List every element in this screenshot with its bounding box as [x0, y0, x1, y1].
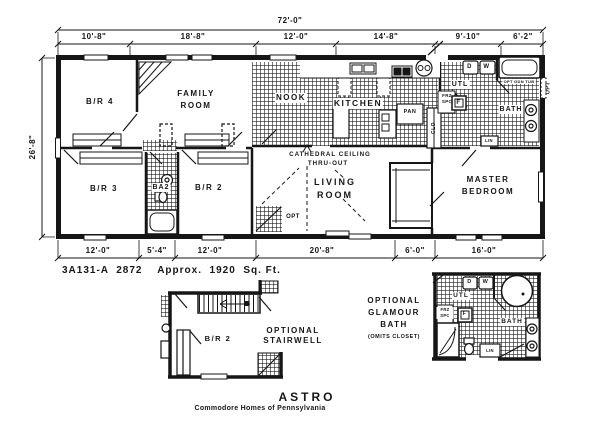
- label-garden-tub: OPT GDN TUB: [503, 79, 536, 84]
- label-washer: W: [483, 64, 490, 72]
- room-label-living: LIVING ROOM: [306, 176, 364, 202]
- label-opt-right: OPT: [545, 82, 552, 95]
- room-label-family: FAMILY ROOM: [168, 88, 224, 111]
- dim-top-2: 12'-0": [284, 32, 309, 42]
- dim-bottom-4: 6'-0": [405, 246, 425, 256]
- plan-subtitle: Commodore Homes of Pennsylvania: [194, 404, 325, 413]
- room-label-br3: B/R 3: [90, 184, 118, 194]
- detail2-label-furnace: F: [463, 311, 468, 318]
- detail1-title-1: OPTIONAL: [266, 326, 319, 336]
- label-cathedral-1: CATHEDRAL CEILING: [289, 151, 371, 159]
- dim-top-4: 9'-10": [456, 32, 481, 42]
- label-freezer: FRZ SPC: [439, 93, 455, 106]
- detail-stairwell: [161, 280, 283, 379]
- detail2-label-linen: LIN: [486, 348, 494, 353]
- room-label-nook: NOOK: [275, 93, 307, 103]
- label-cathedral-2: THRU-OUT: [308, 160, 348, 168]
- detail2-title-2: GLAMOUR: [368, 308, 420, 318]
- dim-overall-depth: 26'-8": [28, 135, 38, 160]
- detail2-label-utl: UTL: [452, 292, 470, 300]
- dim-top-1: 18'-8": [181, 32, 206, 42]
- room-label-br2: B/R 2: [195, 183, 223, 193]
- room-label-bath: BATH: [499, 105, 524, 114]
- dim-bottom-3: 20'-8": [310, 246, 335, 256]
- label-furnace: F: [456, 100, 461, 108]
- label-closet: CLO: [431, 122, 438, 134]
- detail2-label-washer: W: [483, 279, 490, 286]
- detail2-label-freezer: FRZ SPC: [437, 307, 454, 319]
- door-swings: [64, 41, 509, 206]
- dim-top-0: 10'-8": [82, 32, 107, 42]
- model-number-line: 3A131-A 2872 Approx. 1920 Sq. Ft.: [62, 264, 281, 277]
- detail2-label-dryer: D: [467, 279, 472, 286]
- label-dryer: D: [467, 64, 473, 72]
- label-opt-living: OPT: [286, 214, 300, 222]
- dim-bottom-5: 16'-0": [472, 246, 497, 256]
- floorplan-sheet: 72'-0" 10'-8" 18'-8" 12'-0" 14'-8" 9'-10…: [0, 0, 600, 422]
- dim-top-3: 14'-8": [374, 32, 399, 42]
- dim-bottom-1: 5'-4": [147, 246, 167, 256]
- room-label-br4: B/R 4: [86, 97, 114, 107]
- corner-fireplace: [139, 62, 171, 94]
- dim-top-5: 6'-2": [513, 32, 533, 42]
- detail1-title-2: STAIRWELL: [263, 336, 322, 346]
- room-label-master: MASTER BEDROOM: [455, 174, 521, 197]
- label-linen: LIN: [485, 138, 493, 143]
- opt-stair-diagonal: [256, 207, 281, 231]
- detail1-room-br2: B/R 2: [205, 334, 232, 344]
- label-pantry: PAN: [404, 109, 417, 116]
- detail2-title-4: (OMITS CLOSET): [368, 334, 420, 341]
- room-label-ba2: BA2: [151, 183, 170, 192]
- floorplan-linework: [0, 0, 600, 422]
- dim-bottom-0: 12'-0": [86, 246, 111, 256]
- room-label-utility: UTL: [451, 80, 470, 89]
- detail2-title-1: OPTIONAL: [367, 296, 420, 306]
- detail2-title-3: BATH: [380, 320, 408, 330]
- dim-overall-width: 72'-0": [278, 16, 303, 26]
- dim-bottom-2: 12'-0": [198, 246, 223, 256]
- detail2-label-bath: BATH: [500, 318, 524, 326]
- room-label-kitchen: KITCHEN: [333, 98, 383, 109]
- master-wardrobe: [390, 163, 432, 228]
